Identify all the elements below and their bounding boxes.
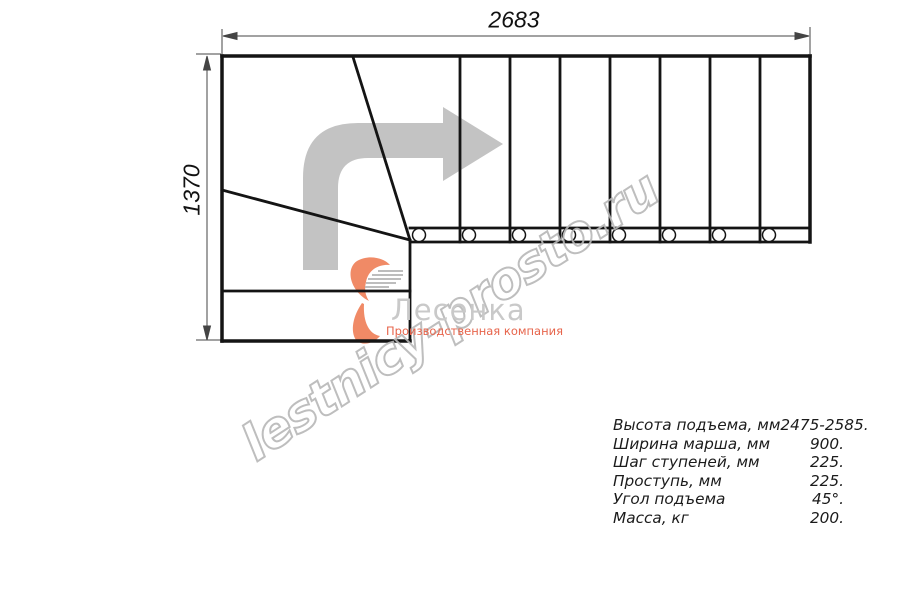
left-dimension-label: 1370 — [179, 164, 206, 215]
stair-drawing-page: lestnicy-prosto.ru 2683 1370 Лесенка Про… — [0, 0, 900, 600]
spec-value: 200. — [810, 509, 844, 528]
spec-value: 225. — [810, 472, 844, 491]
spec-row: Ширина марша, мм 900. — [613, 435, 844, 454]
top-dimension-label: 2683 — [488, 7, 539, 34]
spec-label: Проступь, мм — [613, 472, 722, 491]
spec-label: Высота подъема, мм — [613, 416, 780, 435]
spec-label: Ширина марша, мм — [613, 435, 770, 454]
direction-arrow-icon — [303, 107, 503, 270]
logo-company-name: Лесенка — [391, 296, 526, 325]
logo-tagline: Производственная компания — [386, 326, 563, 338]
spec-value: 900. — [810, 435, 844, 454]
spec-row: Шаг ступеней, мм 225. — [613, 453, 844, 472]
spec-value: 45°. — [812, 490, 844, 509]
spec-label: Шаг ступеней, мм — [613, 453, 760, 472]
spec-row: Высота подъема, мм 2475-2585. — [613, 416, 844, 435]
spec-row: Проступь, мм 225. — [613, 472, 844, 491]
arrowhead-down-icon — [204, 326, 211, 340]
arrowhead-up-icon — [204, 56, 211, 70]
spec-value: 225. — [810, 453, 844, 472]
spec-table: Высота подъема, мм 2475-2585. Ширина мар… — [613, 416, 844, 527]
spec-row: Масса, кг 200. — [613, 509, 844, 528]
arrowhead-right-icon — [795, 33, 809, 40]
spec-value: 2475-2585. — [780, 416, 868, 435]
arrowhead-left-icon — [223, 33, 237, 40]
logo-stair-lines — [365, 271, 403, 291]
spec-label: Угол подъема — [613, 490, 725, 509]
spec-label: Масса, кг — [613, 509, 689, 528]
spec-row: Угол подъема 45°. — [613, 490, 844, 509]
